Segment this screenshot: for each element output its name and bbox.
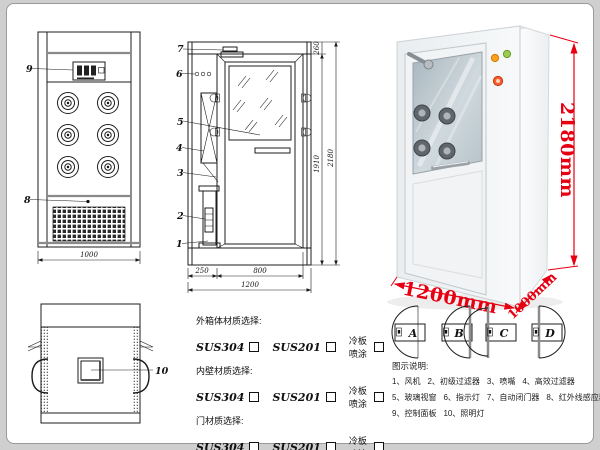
glass-hatching bbox=[233, 70, 287, 132]
part-label-6: 6 bbox=[176, 69, 183, 80]
legend-item: 8、红外线感应器 bbox=[546, 394, 600, 402]
legend-item: 4、高效过滤器 bbox=[522, 378, 574, 386]
material-selection: 外箱体材质选择: SUS304 SUS201 冷板喷涂 内壁材质选择: SUS3… bbox=[196, 312, 384, 450]
material-option-label: SUS304 bbox=[196, 441, 244, 450]
material-option-label: SUS304 bbox=[196, 391, 244, 404]
nozzle-icon bbox=[98, 125, 119, 146]
interior-elevation-drawing: 9 8 bbox=[22, 24, 148, 272]
material-options-row: SUS304 SUS201 冷板喷涂 bbox=[196, 334, 384, 360]
part-label-7: 7 bbox=[177, 44, 184, 55]
part-label-9: 9 bbox=[26, 64, 33, 75]
material-checkbox[interactable] bbox=[326, 442, 336, 450]
nozzle-icon bbox=[98, 93, 119, 114]
dim-total-width: 1200 bbox=[241, 281, 259, 289]
nozzle-icon bbox=[58, 125, 79, 146]
material-checkbox[interactable] bbox=[249, 342, 259, 352]
front-elevation-drawing: 7 6 5 4 3 2 1 bbox=[170, 30, 348, 312]
door bbox=[217, 54, 303, 248]
legend-row: 9、控制面板 10、照明灯 bbox=[392, 410, 598, 418]
material-option-label: 冷板喷涂 bbox=[349, 384, 369, 410]
legend-item: 6、指示灯 bbox=[443, 394, 479, 402]
door-closer bbox=[221, 47, 243, 57]
material-options-row: SUS304 SUS201 冷板喷涂 bbox=[196, 384, 384, 410]
dim-top-section: 260 bbox=[313, 41, 321, 56]
control-panel bbox=[73, 62, 105, 80]
material-group-title: 外箱体材质选择: bbox=[196, 317, 384, 326]
legend-item: 5、玻璃视窗 bbox=[392, 394, 436, 402]
part-label-3: 3 bbox=[177, 168, 184, 179]
material-checkbox[interactable] bbox=[326, 392, 336, 402]
door-option-letter: A bbox=[408, 327, 418, 340]
material-options-row: SUS304 SUS201 冷板喷涂 bbox=[196, 434, 384, 450]
material-option-label: SUS304 bbox=[196, 341, 244, 354]
legend-item: 9、控制面板 bbox=[392, 410, 436, 418]
wall-hatch-left bbox=[42, 328, 49, 413]
material-option-label: 冷板喷涂 bbox=[349, 334, 369, 360]
material-group-title: 门材质选择: bbox=[196, 417, 384, 426]
material-option-label: SUS201 bbox=[272, 441, 320, 450]
nozzle-icon bbox=[98, 157, 119, 178]
nozzle-icon bbox=[58, 93, 79, 114]
dim-door-width: 800 bbox=[253, 267, 267, 275]
part-label-10: 10 bbox=[155, 366, 169, 377]
legend-item: 3、喷嘴 bbox=[487, 378, 515, 386]
part-label-2: 2 bbox=[176, 211, 184, 222]
door-option-b: B bbox=[442, 306, 472, 358]
material-checkbox[interactable] bbox=[249, 392, 259, 402]
legend-item: 7、自动闭门器 bbox=[487, 394, 539, 402]
door-option-letter: B bbox=[453, 327, 463, 340]
door-option-letter: C bbox=[500, 327, 509, 340]
part-label-5: 5 bbox=[177, 117, 184, 128]
technical-sheet: 9 8 bbox=[0, 0, 600, 450]
return-air-grille bbox=[53, 207, 125, 241]
indicator-lights bbox=[195, 72, 211, 76]
nozzles bbox=[58, 93, 119, 178]
duct-strut bbox=[203, 163, 218, 182]
material-group-title: 内壁材质选择: bbox=[196, 367, 384, 376]
door-option-d: D bbox=[532, 306, 565, 358]
dim-total-height: 2180 bbox=[327, 149, 335, 168]
dim-front-width: 1000 bbox=[80, 251, 98, 259]
material-option-label: 冷板喷涂 bbox=[349, 434, 369, 450]
legend-row: 1、风机 2、初级过滤器 3、喷嘴 4、高效过滤器 bbox=[392, 378, 598, 386]
legend-item: 1、风机 bbox=[392, 378, 420, 386]
legend-item: 10、照明灯 bbox=[443, 410, 484, 418]
ceiling-lamp bbox=[78, 358, 103, 383]
legend-item: 2、初级过滤器 bbox=[427, 378, 479, 386]
material-checkbox[interactable] bbox=[374, 442, 384, 450]
material-checkbox[interactable] bbox=[249, 442, 259, 450]
door-option-a: A bbox=[392, 306, 425, 358]
parts-legend: 图示说明: 1、风机 2、初级过滤器 3、喷嘴 4、高效过滤器 5、玻璃视窗 6… bbox=[392, 362, 598, 426]
material-option-label: SUS201 bbox=[272, 341, 320, 354]
part-label-1: 1 bbox=[176, 239, 183, 250]
dim-inner-height: 1910 bbox=[313, 155, 321, 173]
part-label-4: 4 bbox=[176, 143, 183, 154]
door-option-letter: D bbox=[544, 327, 555, 340]
material-checkbox[interactable] bbox=[326, 342, 336, 352]
legend-title: 图示说明: bbox=[392, 362, 598, 371]
sensor-dot bbox=[86, 200, 89, 203]
plan-view-drawing: 10 bbox=[28, 296, 178, 444]
nozzle-icon bbox=[58, 157, 79, 178]
material-checkbox[interactable] bbox=[374, 342, 384, 352]
door-handle bbox=[255, 148, 290, 153]
material-checkbox[interactable] bbox=[374, 392, 384, 402]
part-label-8: 8 bbox=[24, 195, 31, 206]
dim-side-left: 250 bbox=[194, 267, 209, 275]
door-opening-options: A B C D bbox=[388, 299, 580, 363]
legend-row: 5、玻璃视窗 6、指示灯 7、自动闭门器 8、红外线感应器 bbox=[392, 394, 598, 402]
material-option-label: SUS201 bbox=[272, 391, 320, 404]
